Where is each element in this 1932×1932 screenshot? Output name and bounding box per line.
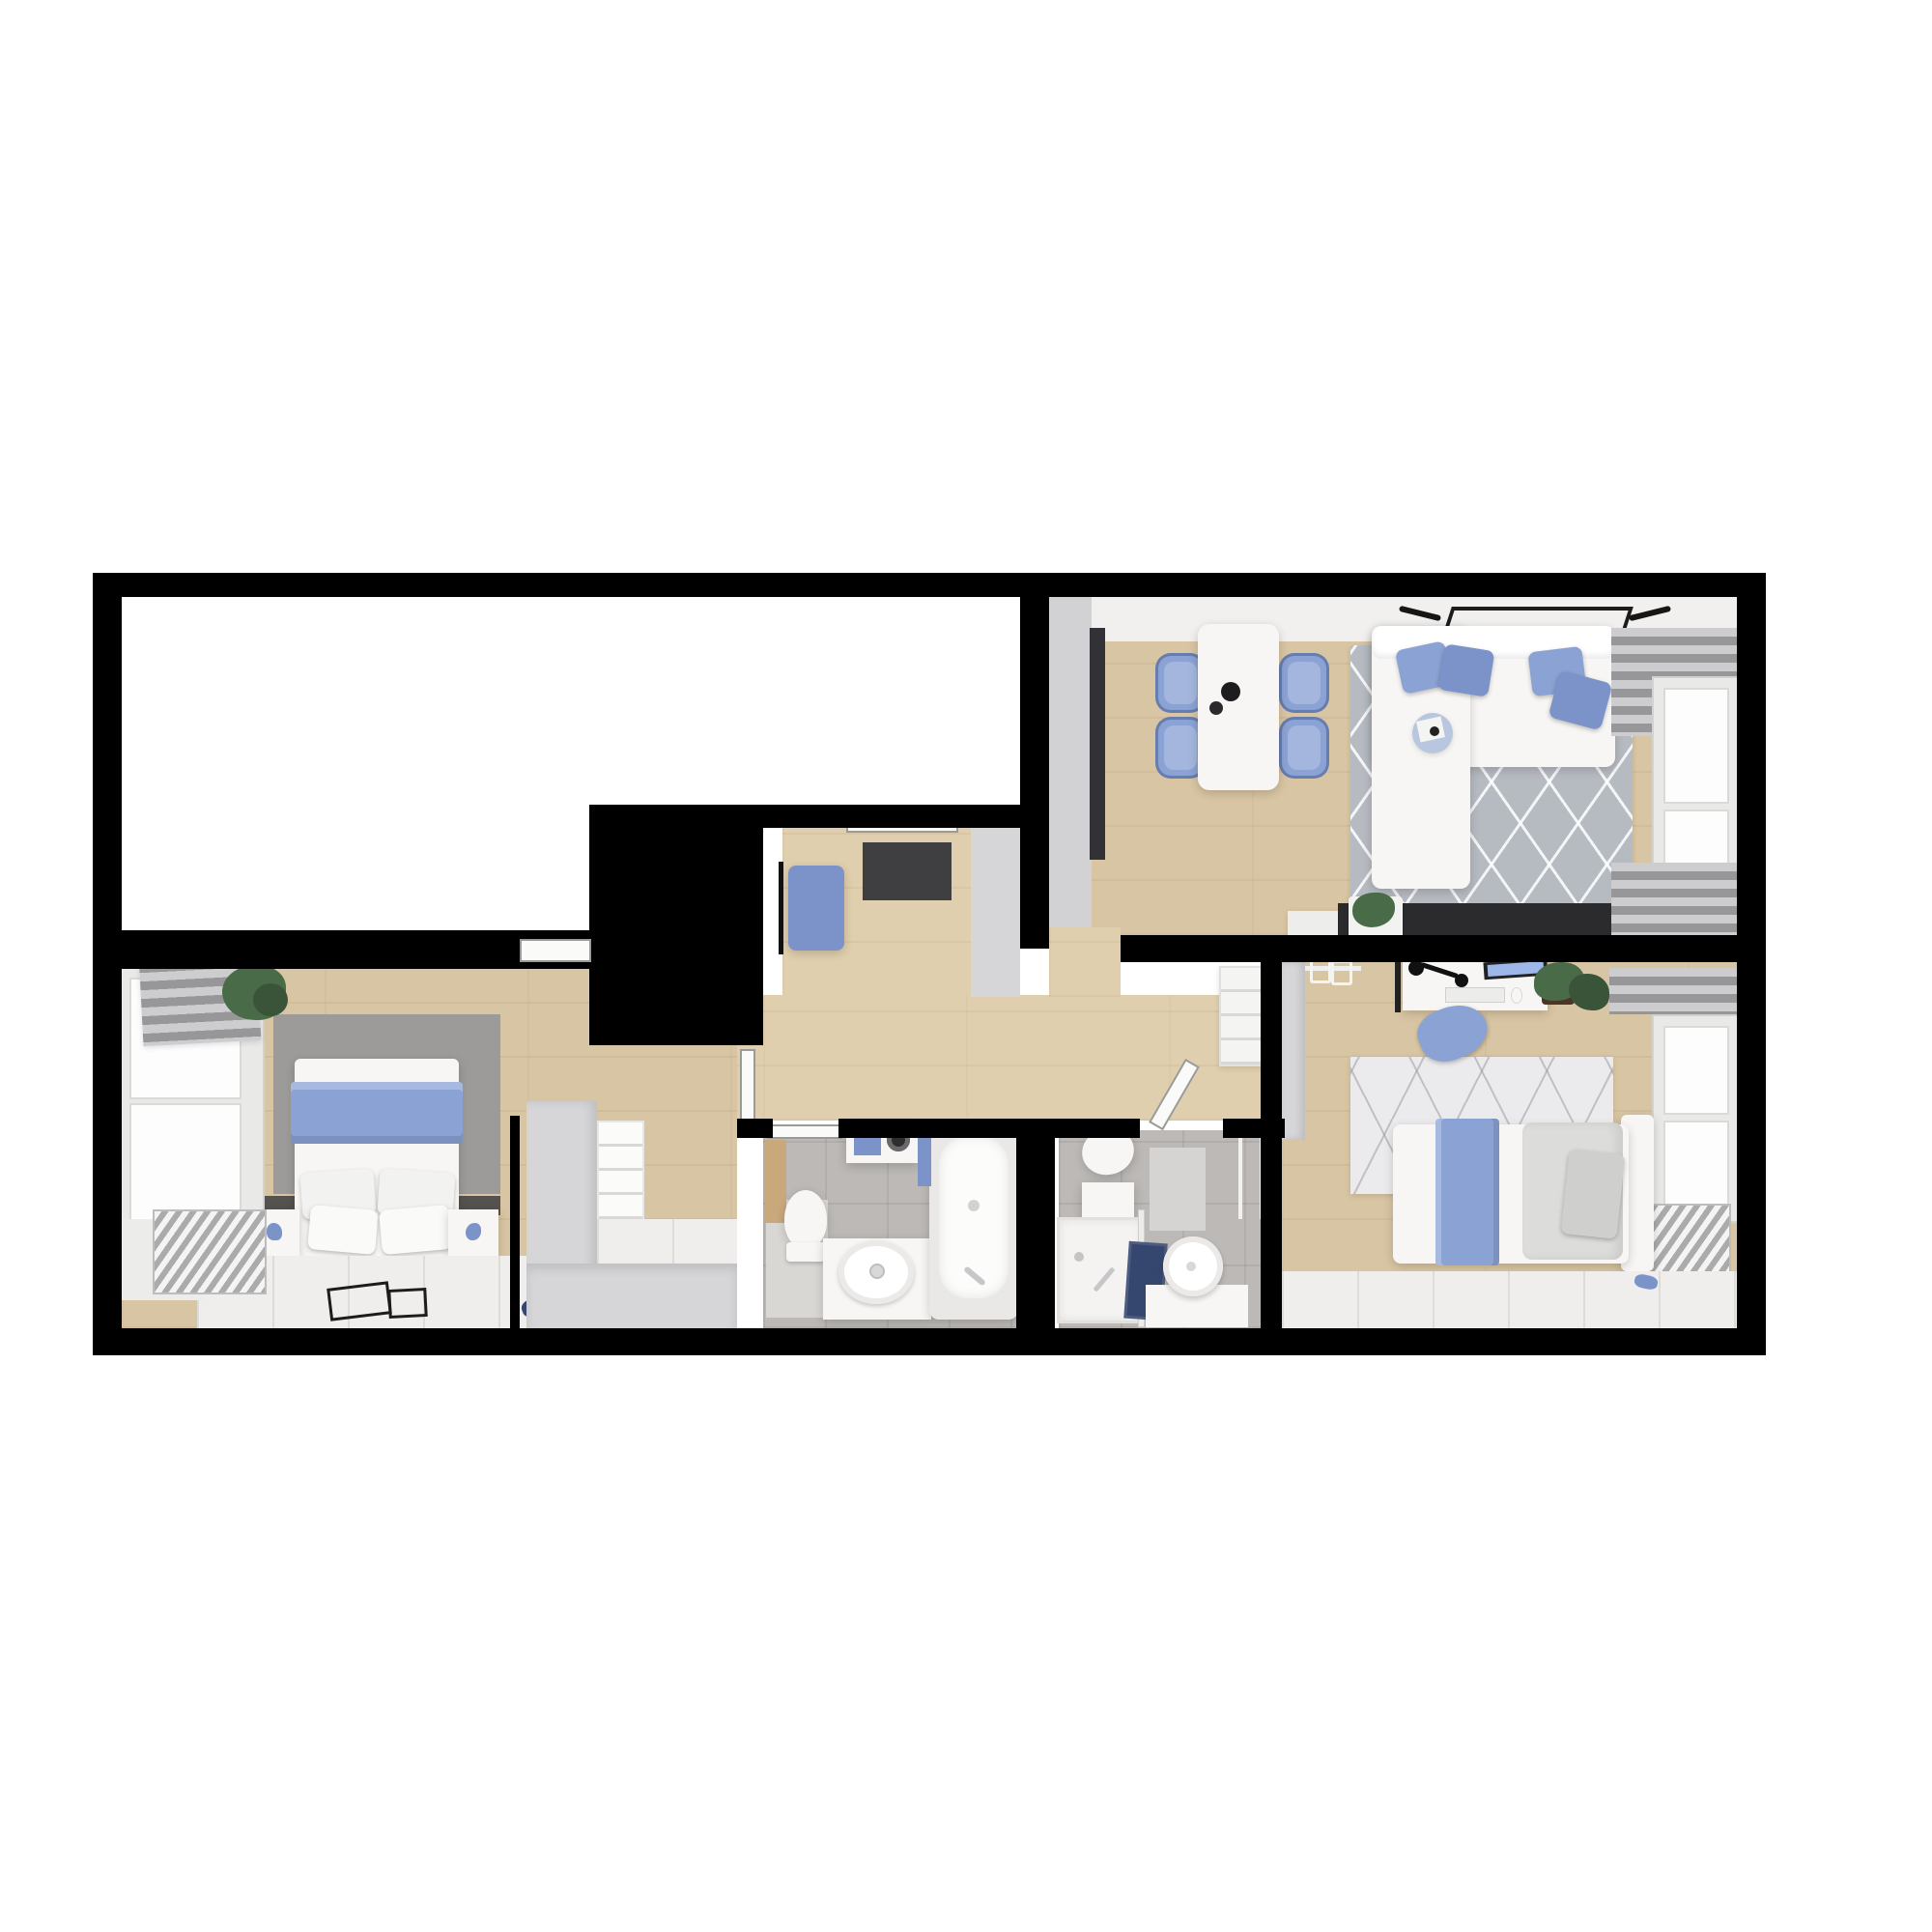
wall-bottom xyxy=(93,1328,1766,1355)
dining-chair xyxy=(1279,653,1329,713)
bedroom2-window xyxy=(1652,1014,1741,1223)
bedroom1-blue-throw xyxy=(291,1082,463,1144)
bedroom2-pillow-grey xyxy=(1561,1149,1626,1239)
bedroom1-door-leaf xyxy=(740,1049,755,1121)
wall-right xyxy=(1737,573,1766,1355)
nightstand-decor-icon xyxy=(267,1223,282,1240)
keyboard xyxy=(1445,987,1505,1003)
window-pane xyxy=(1663,688,1729,804)
wall-step-above-entry xyxy=(589,805,1020,828)
shower-drain-icon xyxy=(1074,1252,1084,1262)
towel-blue xyxy=(918,1130,931,1186)
wardrobe-panel xyxy=(1282,962,1305,1140)
living-left-wall-face xyxy=(1049,597,1092,935)
wall-bath-divider xyxy=(1016,1130,1055,1330)
bath-mat xyxy=(1150,1148,1206,1231)
wall-bedroom1-corridor xyxy=(737,1119,763,1138)
floor-plan-render xyxy=(0,0,1932,1932)
wall-corridor-right xyxy=(1261,962,1282,1330)
wall-corridor-bottom-2 xyxy=(1223,1119,1285,1138)
doormat xyxy=(863,842,952,900)
toilet-bowl xyxy=(784,1190,827,1248)
bathroom-door-leaf xyxy=(767,1124,842,1139)
toilet-tank xyxy=(786,1242,825,1262)
closet-wardrobe-bottom-bar xyxy=(526,1264,737,1330)
corridor-shelf-unit xyxy=(1219,966,1264,1066)
entry-closet-block xyxy=(971,828,1020,997)
tub-drain-icon xyxy=(968,1200,980,1211)
side-table-cup xyxy=(1430,726,1439,736)
sofa-cushion xyxy=(1438,643,1495,697)
desk-lamp-head-icon xyxy=(1455,974,1468,987)
coat-rack-icon xyxy=(779,862,783,954)
wall-living-bottom xyxy=(1121,935,1766,962)
wall-block-west-of-entry xyxy=(589,828,763,1045)
dining-chair xyxy=(1279,717,1329,779)
hanger-icon xyxy=(1331,960,1352,985)
living-curtain-bottom xyxy=(1611,863,1737,935)
wall-closet-stub xyxy=(510,1116,520,1330)
wall-corridor-bottom-1 xyxy=(838,1119,1140,1138)
bedroom1-top-door-leaf xyxy=(520,939,591,962)
basin-faucet-icon xyxy=(869,1264,885,1279)
wall-top xyxy=(93,573,1766,597)
entry-bench xyxy=(788,866,844,951)
living-entry-passage-floor xyxy=(1049,927,1121,997)
bedroom2-blue-blanket xyxy=(1435,1119,1499,1265)
closet-floor-white xyxy=(597,1219,737,1265)
bed-pillow xyxy=(307,1205,379,1255)
window-pane xyxy=(1663,1121,1729,1213)
window-pane xyxy=(1663,1026,1729,1115)
desk-legs-icon xyxy=(1395,956,1401,1012)
bedroom2-curtain-top xyxy=(1609,968,1737,1014)
wall-divider-whiteroom-living xyxy=(1020,573,1049,949)
wall-bath1-top-left-stub xyxy=(763,1119,773,1138)
basin-faucet-icon xyxy=(1186,1262,1196,1271)
picture-frame xyxy=(387,1288,428,1319)
corridor-floor xyxy=(763,995,1261,1121)
bed-pillow xyxy=(379,1205,452,1255)
table-vase-icon xyxy=(1221,682,1240,701)
kitchen-unit xyxy=(1090,628,1105,860)
wooden-shelf xyxy=(765,1140,786,1223)
table-vase-icon xyxy=(1209,701,1223,715)
bedroom1-radiator xyxy=(153,1209,267,1294)
plant-icon xyxy=(253,983,288,1016)
bedroom2-platform-floor xyxy=(1282,1271,1737,1329)
mouse-icon xyxy=(1511,987,1522,1004)
